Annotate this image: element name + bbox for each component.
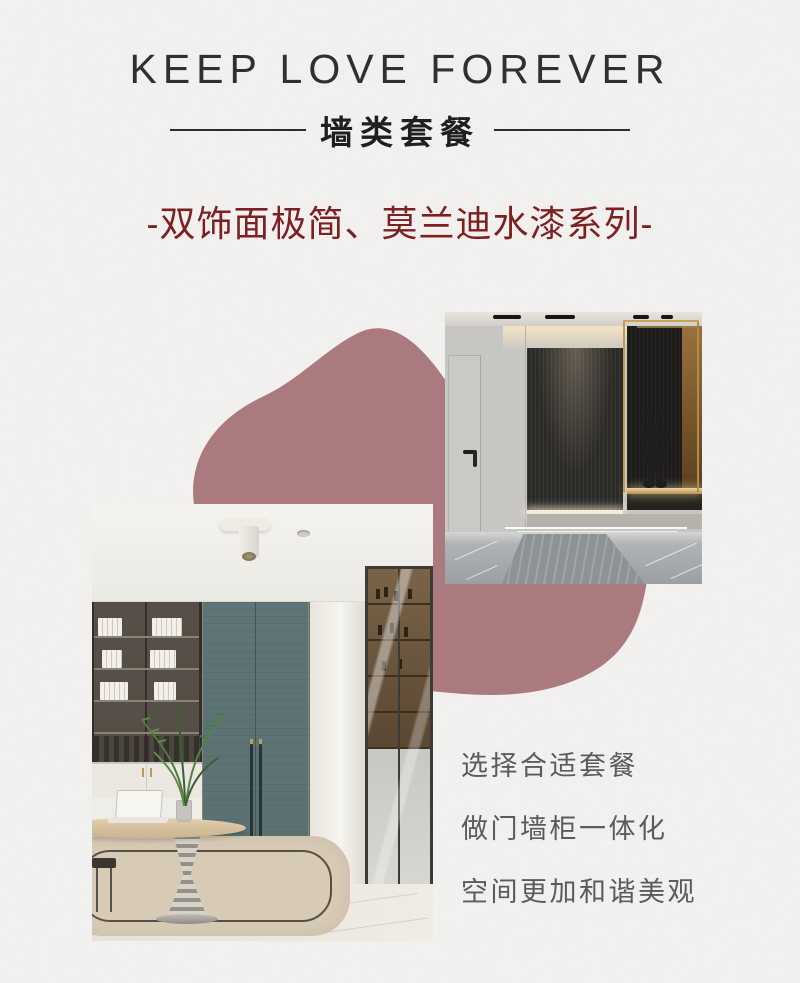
bookcase-shelf [94,636,199,638]
desk-base-plate [156,914,218,924]
books [152,618,182,636]
chair-leg [96,868,98,912]
brass-frame [637,326,699,328]
cabinet-base [627,494,702,510]
baseboard-led [505,527,687,529]
entry-door [448,355,481,531]
door-handle-stem [473,450,477,467]
chair [92,858,116,868]
subtitle-line-left [170,129,306,131]
books [100,682,128,700]
ceiling-track-light [633,315,649,319]
feature-list: 选择合适套餐 做门墙柜一体化 空间更加和谐美观 [461,750,697,939]
brass-frame [623,320,699,322]
fluted-dark-wall-panel [527,348,623,510]
poster-page: KEEP LOVE FOREVER 墙类套餐 -双饰面极简、莫兰迪水漆系列- [0,0,800,983]
brass-frame [697,320,699,492]
spotlight-lens [242,552,256,561]
bookcase-shelf [94,668,199,670]
rug-border-line [92,850,332,922]
books [102,650,122,668]
books [98,618,122,636]
page-title: KEEP LOVE FOREVER [0,46,800,93]
ceiling-track-light [493,315,521,319]
recessed-downlight [297,530,310,537]
subtitle-line-right [494,129,630,131]
page-subtitle: 墙类套餐 [320,106,480,154]
laptop-base [107,817,169,823]
glass-reflection [368,569,430,927]
glass-sliding-door [365,566,433,930]
subtitle-row: 墙类套餐 [0,106,800,154]
books [150,650,176,668]
ceiling-track-light [545,315,575,319]
books [154,682,176,700]
feature-item-2: 做门墙柜一体化 [461,813,697,845]
entryway-photo [445,312,702,584]
ceiling-track-light [661,315,673,319]
plant [132,700,232,808]
study-room-photo [92,504,433,941]
header: KEEP LOVE FOREVER 墙类套餐 -双饰面极简、莫兰迪水漆系列- [0,0,800,247]
bunny-art-figure [635,404,675,490]
chair-leg [110,868,112,912]
series-title: -双饰面极简、莫兰迪水漆系列- [0,195,800,247]
copper-back-panel [682,326,702,490]
wall-seam [525,326,526,532]
brass-frame [623,320,625,492]
feature-item-3: 空间更加和谐美观 [461,876,697,908]
feature-item-1: 选择合适套餐 [461,750,697,782]
